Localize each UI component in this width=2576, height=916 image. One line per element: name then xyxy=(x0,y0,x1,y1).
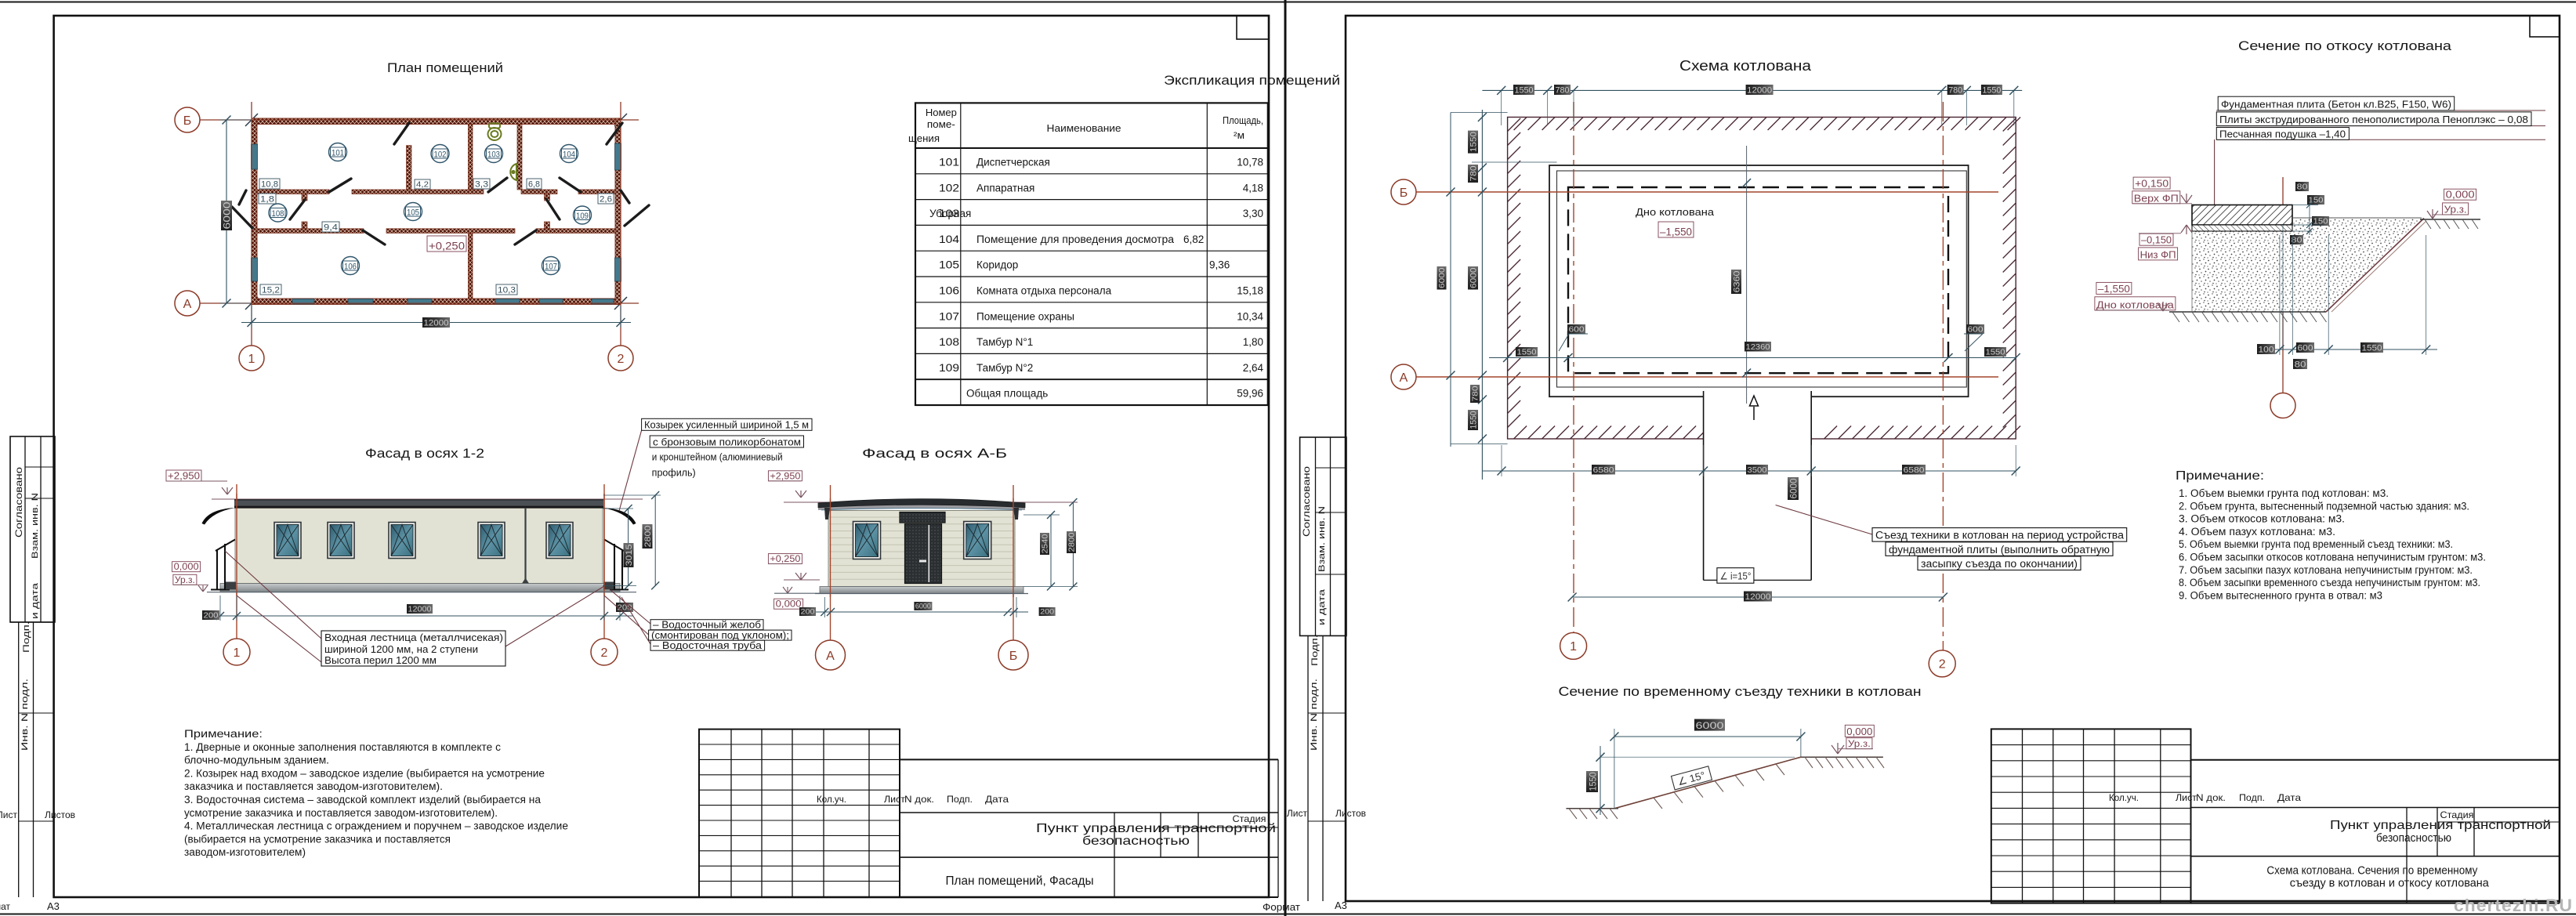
svg-text:заказчика и поставляется завод: заказчика и поставляется заводом-изготов… xyxy=(184,780,443,792)
svg-text:Коридор: Коридор xyxy=(976,259,1018,271)
svg-text:1: 1 xyxy=(1570,640,1577,654)
svg-text:Фундаментная плита (Бетон кл.В: Фундаментная плита (Бетон кл.В25, F150, … xyxy=(2221,99,2451,110)
svg-text:7. Объем засыпки пазух котлова: 7. Объем засыпки пазух котлована непучин… xyxy=(2179,564,2473,576)
svg-text:107: 107 xyxy=(939,310,959,322)
svg-text:0,000: 0,000 xyxy=(2446,190,2475,201)
svg-text:1550: 1550 xyxy=(2362,344,2382,353)
svg-text:2: 2 xyxy=(1939,658,1946,672)
svg-text:780: 780 xyxy=(1556,86,1570,96)
svg-text:6,82: 6,82 xyxy=(1183,234,1204,245)
svg-text:6000: 6000 xyxy=(1438,267,1447,288)
svg-text:104: 104 xyxy=(939,234,960,245)
svg-text:1550: 1550 xyxy=(1588,772,1599,791)
svg-text:6000: 6000 xyxy=(1696,720,1724,731)
svg-text:101: 101 xyxy=(332,149,344,158)
svg-text:200: 200 xyxy=(801,608,815,616)
svg-text:2: 2 xyxy=(601,646,608,660)
svg-text:Помещение охраны: Помещение охраны xyxy=(976,310,1074,322)
svg-text:15,18: 15,18 xyxy=(1237,285,1263,297)
svg-text:2800: 2800 xyxy=(643,526,653,548)
svg-text:А: А xyxy=(183,298,192,311)
svg-text:6000: 6000 xyxy=(222,201,233,229)
svg-text:1,8: 1,8 xyxy=(260,195,274,205)
svg-text:3,30: 3,30 xyxy=(1243,208,1263,219)
svg-text:59,96: 59,96 xyxy=(1237,388,1263,400)
svg-text:80: 80 xyxy=(2297,183,2309,192)
svg-text:+2,950: +2,950 xyxy=(168,471,200,482)
svg-text:chertezhi.RU: chertezhi.RU xyxy=(2454,896,2573,915)
svg-text:2540: 2540 xyxy=(1042,534,1050,553)
svg-text:Пункт управления транспортной: Пункт управления транспортной xyxy=(2330,819,2551,832)
svg-text:6000: 6000 xyxy=(1788,478,1799,498)
svg-text:Ур.з.: Ур.з. xyxy=(175,576,195,585)
svg-text:Инв. N подл.: Инв. N подл. xyxy=(20,679,30,751)
svg-text:∠ i=15°: ∠ i=15° xyxy=(1720,571,1752,582)
svg-text:1550: 1550 xyxy=(1982,86,2001,96)
svg-text:Дата: Дата xyxy=(2277,792,2301,803)
svg-text:Примечание:: Примечание: xyxy=(184,728,263,740)
svg-text:Дно котлована: Дно котлована xyxy=(2096,299,2174,310)
svg-text:8. Объем засыпки временного съ: 8. Объем засыпки временного съезда непуч… xyxy=(2179,577,2480,588)
svg-text:Взам. инв. N: Взам. инв. N xyxy=(1317,506,1327,572)
svg-text:Лист: Лист xyxy=(1287,808,1308,819)
svg-text:и дата: и дата xyxy=(31,582,40,619)
svg-text:План помещений, Фасады: План помещений, Фасады xyxy=(946,874,1094,888)
svg-text:Подп.: Подп. xyxy=(22,621,31,653)
svg-text:105: 105 xyxy=(939,259,959,271)
svg-text:+0,250: +0,250 xyxy=(770,555,800,564)
svg-text:усмотрение заказчика и поставл: усмотрение заказчика и поставляется заво… xyxy=(184,807,498,819)
svg-text:Подп.: Подп. xyxy=(2239,792,2265,803)
svg-text:5. Объем выемки грунта под вре: 5. Объем выемки грунта под временный съе… xyxy=(2179,538,2453,550)
svg-text:780: 780 xyxy=(1948,86,1962,96)
svg-text:105: 105 xyxy=(407,208,419,218)
svg-text:Низ ФП: Низ ФП xyxy=(2140,249,2176,260)
svg-text:съезду в котлован и откосу кот: съезду в котлован и откосу котлована xyxy=(2290,877,2490,890)
svg-text:1. Дверные и оконные заполнени: 1. Дверные и оконные заполнения поставля… xyxy=(184,741,501,753)
svg-text:Верх ФП: Верх ФП xyxy=(2134,193,2179,204)
svg-text:заводом-изготовителем): заводом-изготовителем) xyxy=(184,846,306,858)
svg-text:10,34: 10,34 xyxy=(1237,310,1263,322)
svg-text:12000: 12000 xyxy=(1745,592,1771,602)
svg-text:0,000: 0,000 xyxy=(174,563,199,572)
svg-text:100: 100 xyxy=(2259,346,2274,355)
svg-text:безопасностью: безопасностью xyxy=(2376,832,2451,845)
svg-text:Пункт управления транспортной: Пункт управления транспортной xyxy=(1036,822,1276,835)
svg-text:106: 106 xyxy=(939,285,959,297)
svg-text:+2,950: +2,950 xyxy=(770,472,800,481)
svg-text:3. Водосточная система – завод: 3. Водосточная система – заводской компл… xyxy=(184,794,541,806)
svg-text:Дата: Дата xyxy=(985,794,1009,805)
svg-text:109: 109 xyxy=(939,362,959,374)
svg-text:Б: Б xyxy=(183,114,192,128)
svg-text:фундаментной плиты (выполнить: фундаментной плиты (выполнить обратную xyxy=(1889,544,2110,556)
svg-text:1550: 1550 xyxy=(1517,349,1537,357)
svg-text:– Водосточный желоб: – Водосточный желоб xyxy=(653,620,761,631)
svg-text:12360: 12360 xyxy=(1746,342,1770,352)
svg-text:1. Объем выемки грунта под кот: 1. Объем выемки грунта под котлован: м3. xyxy=(2179,487,2389,499)
svg-text:²м: ²м xyxy=(1234,130,1245,141)
svg-text:1550: 1550 xyxy=(1469,132,1479,152)
svg-text:N док.: N док. xyxy=(2196,792,2226,803)
svg-text:Листов: Листов xyxy=(1335,808,1366,819)
svg-text:103: 103 xyxy=(487,150,500,160)
svg-text:600: 600 xyxy=(1569,326,1585,335)
svg-text:профиль): профиль) xyxy=(652,467,696,478)
svg-text:4,18: 4,18 xyxy=(1243,182,1263,194)
svg-text:– Водосточная труба: – Водосточная труба xyxy=(653,640,762,651)
svg-text:и кронштейном (алюминиевый: и кронштейном (алюминиевый xyxy=(652,452,783,463)
svg-text:1: 1 xyxy=(248,353,255,366)
svg-text:Подп.: Подп. xyxy=(947,794,973,805)
svg-text:1: 1 xyxy=(234,646,241,660)
svg-text:Общая площадь: Общая площадь xyxy=(966,388,1048,400)
svg-text:2,6: 2,6 xyxy=(600,195,612,205)
svg-text:Плиты экструдированного пенопо: Плиты экструдированного пенополистирола … xyxy=(2219,114,2528,125)
svg-text:6. Объем засыпки откосов котло: 6. Объем засыпки откосов котлована непуч… xyxy=(2179,552,2486,563)
svg-text:Песчанная подушка –1,40: Песчанная подушка –1,40 xyxy=(2219,128,2346,139)
svg-text:безопасностью: безопасностью xyxy=(1082,835,1190,848)
svg-text:4. Металлическая лестница с ог: 4. Металлическая лестница с ограждением … xyxy=(184,820,568,832)
svg-text:Взам. инв. N: Взам. инв. N xyxy=(31,493,40,559)
svg-text:Сечение по временному съезду т: Сечение по временному съезду техники в к… xyxy=(1559,684,1922,699)
svg-text:Аппаратная: Аппаратная xyxy=(976,182,1034,194)
svg-text:106: 106 xyxy=(344,262,357,272)
svg-text:Помещение для проведения досмо: Помещение для проведения досмотра xyxy=(976,234,1174,245)
svg-text:–0,150: –0,150 xyxy=(2141,235,2172,246)
svg-text:Наименование: Наименование xyxy=(1047,122,1121,134)
svg-text:108: 108 xyxy=(272,209,284,219)
svg-text:–1,550: –1,550 xyxy=(2098,284,2130,295)
svg-text:1550: 1550 xyxy=(1515,86,1534,96)
svg-text:Высота перил 1200 мм: Высота перил 1200 мм xyxy=(324,654,437,666)
svg-text:А: А xyxy=(1400,371,1408,385)
svg-text:2800: 2800 xyxy=(1068,532,1077,552)
svg-text:15,2: 15,2 xyxy=(262,286,280,295)
svg-text:поме-: поме- xyxy=(927,119,955,130)
svg-text:Комната отдыха персонала: Комната отдыха персонала xyxy=(976,285,1112,297)
svg-text:1550: 1550 xyxy=(1986,349,2005,357)
svg-text:780: 780 xyxy=(1469,166,1479,182)
svg-text:Схема котлована: Схема котлована xyxy=(1679,58,1812,74)
svg-text:Номер: Номер xyxy=(926,107,957,118)
svg-text:Тамбур N°1: Тамбур N°1 xyxy=(976,336,1033,348)
svg-text:План помещений: План помещений xyxy=(387,60,503,75)
svg-text:Тамбур N°2: Тамбур N°2 xyxy=(976,362,1033,374)
svg-text:1,80: 1,80 xyxy=(1243,336,1263,348)
svg-text:10,78: 10,78 xyxy=(1237,157,1263,168)
svg-text:Б: Б xyxy=(1400,186,1408,200)
svg-text:2. Объем грунта, вытесненный п: 2. Объем грунта, вытесненный подземной ч… xyxy=(2179,500,2469,512)
svg-text:3015: 3015 xyxy=(625,545,634,567)
svg-text:109: 109 xyxy=(576,212,589,221)
svg-text:104: 104 xyxy=(563,150,575,160)
svg-text:3,3: 3,3 xyxy=(475,180,488,190)
svg-text:блочно-модульным зданием.: блочно-модульным зданием. xyxy=(184,755,329,766)
svg-text:2. Козырек над входом – заводс: 2. Козырек над входом – заводское издели… xyxy=(184,767,545,779)
svg-text:9. Объем вытесненного грунта в: 9. Объем вытесненного грунта в отвал: м3 xyxy=(2179,589,2382,601)
svg-text:80: 80 xyxy=(2292,237,2303,245)
svg-text:Кол.уч.: Кол.уч. xyxy=(817,794,846,805)
svg-text:102: 102 xyxy=(434,150,447,160)
svg-text:Экспликация помещений: Экспликация помещений xyxy=(1164,73,1340,88)
svg-text:Подп.: Подп. xyxy=(1310,635,1320,666)
svg-text:+0,150: +0,150 xyxy=(2135,179,2168,190)
svg-text:6000: 6000 xyxy=(915,603,931,610)
svg-text:А: А xyxy=(826,650,835,663)
svg-text:Фасад в осях А-Б: Фасад в осях А-Б xyxy=(862,446,1007,461)
svg-text:Фасад в осях 1-2: Фасад в осях 1-2 xyxy=(365,446,484,461)
svg-text:6580: 6580 xyxy=(1904,465,1925,475)
svg-text:200: 200 xyxy=(1040,608,1054,616)
svg-text:Формат: Формат xyxy=(1263,902,1300,913)
svg-text:Сечение по откосу котлована: Сечение по откосу котлована xyxy=(2238,38,2452,53)
svg-text:102: 102 xyxy=(939,182,959,194)
svg-text:10,3: 10,3 xyxy=(498,286,516,295)
svg-text:и дата: и дата xyxy=(1317,588,1327,625)
svg-text:шириной 1200 мм, на 2 ступени: шириной 1200 мм, на 2 ступени xyxy=(324,643,478,655)
svg-text:Ур.з.: Ур.з. xyxy=(1848,738,1871,749)
svg-text:Кол.уч.: Кол.уч. xyxy=(2109,792,2139,803)
svg-text:Диспетчерская: Диспетчерская xyxy=(976,157,1050,168)
svg-text:–1,550: –1,550 xyxy=(1660,226,1692,238)
svg-text:Уборная: Уборная xyxy=(929,208,971,219)
svg-text:Ур.з.: Ур.з. xyxy=(2444,204,2467,215)
svg-text:200: 200 xyxy=(204,612,219,621)
svg-text:1550: 1550 xyxy=(1469,411,1479,429)
svg-text:Формат: Формат xyxy=(0,901,10,912)
svg-text:12000: 12000 xyxy=(408,606,432,614)
svg-text:12000: 12000 xyxy=(424,319,449,328)
svg-text:0,000: 0,000 xyxy=(1846,726,1872,737)
svg-text:12000: 12000 xyxy=(1747,86,1772,96)
svg-text:0,000: 0,000 xyxy=(776,600,802,610)
svg-text:600: 600 xyxy=(1968,326,1984,335)
svg-text:+0,250: +0,250 xyxy=(429,240,465,252)
svg-text:2,64: 2,64 xyxy=(1243,362,1264,374)
svg-text:щения: щения xyxy=(908,133,940,144)
svg-text:Площадь,: Площадь, xyxy=(1223,115,1263,126)
svg-text:Дно котлована: Дно котлована xyxy=(1636,206,1715,218)
svg-text:101: 101 xyxy=(939,157,959,168)
svg-text:Козырек усиленный шириной 1,5: Козырек усиленный шириной 1,5 м xyxy=(644,420,809,431)
svg-text:Схема котлована. Сечения по вр: Схема котлована. Сечения по временному xyxy=(2266,864,2477,878)
svg-text:600: 600 xyxy=(2298,344,2313,353)
svg-text:с бронзовым поликорбонатом: с бронзовым поликорбонатом xyxy=(653,436,801,447)
svg-text:А3: А3 xyxy=(47,900,60,912)
svg-text:9,36: 9,36 xyxy=(1209,259,1230,271)
svg-text:Б: Б xyxy=(1009,650,1018,663)
svg-text:Согласовано: Согласовано xyxy=(1301,466,1312,537)
svg-text:Лист: Лист xyxy=(0,809,18,820)
svg-text:Листов: Листов xyxy=(45,809,75,820)
svg-text:3. Объем откосов котлована: м: 3. Объем откосов котлована: м3. xyxy=(2179,513,2345,525)
svg-text:3500: 3500 xyxy=(1748,465,1767,475)
svg-text:(смонтирован под уклоном);: (смонтирован под уклоном); xyxy=(651,630,789,641)
svg-text:6,8: 6,8 xyxy=(528,180,540,190)
svg-text:2: 2 xyxy=(618,353,625,366)
svg-text:засыпку съезда по окончании): засыпку съезда по окончании) xyxy=(1921,558,2078,570)
svg-text:780: 780 xyxy=(1472,386,1480,402)
svg-text:9,4: 9,4 xyxy=(324,223,338,233)
svg-text:Лист: Лист xyxy=(884,794,906,805)
svg-text:Согласовано: Согласовано xyxy=(13,467,24,538)
svg-text:Съезд техники в котлован на пе: Съезд техники в котлован на период устро… xyxy=(1875,530,2125,541)
svg-text:10,8: 10,8 xyxy=(261,180,278,190)
svg-text:6000: 6000 xyxy=(1469,268,1479,289)
svg-text:(выбирается на усмотрение зака: (выбирается на усмотрение заказчика и по… xyxy=(184,833,451,845)
svg-text:4,2: 4,2 xyxy=(416,181,429,190)
svg-text:80: 80 xyxy=(2295,360,2306,370)
svg-text:6580: 6580 xyxy=(1593,465,1614,475)
svg-text:108: 108 xyxy=(939,336,959,348)
svg-text:Примечание:: Примечание: xyxy=(2176,469,2264,483)
svg-text:4. Объем пазух котлована: м3.: 4. Объем пазух котлована: м3. xyxy=(2179,526,2335,538)
svg-text:6360: 6360 xyxy=(1733,271,1742,293)
svg-text:N док.: N док. xyxy=(904,794,934,805)
svg-text:107: 107 xyxy=(545,262,557,272)
svg-text:Лист: Лист xyxy=(2176,792,2197,803)
svg-text:Инв. N подл.: Инв. N подл. xyxy=(1310,679,1319,751)
svg-text:Входная лестница (металлчисека: Входная лестница (металлчисекая) xyxy=(324,632,503,643)
